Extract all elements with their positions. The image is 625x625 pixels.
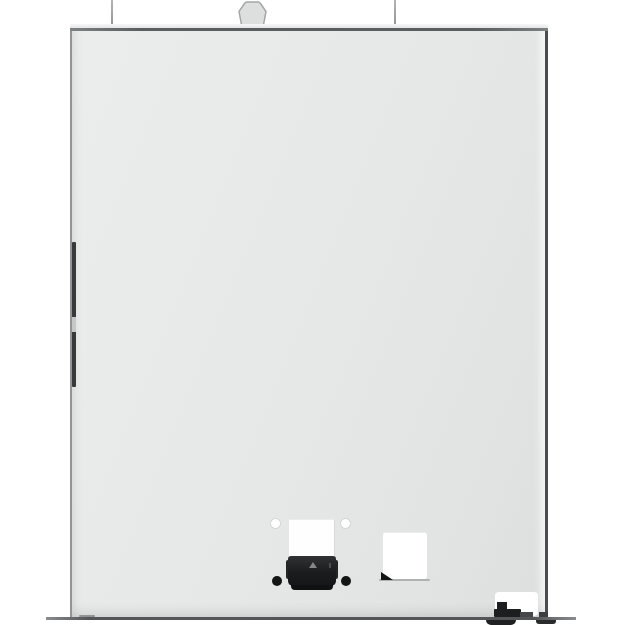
connector-body	[288, 556, 336, 586]
cord-cutout	[289, 519, 335, 560]
rear-panel	[70, 24, 548, 618]
screw-bottom-right	[341, 576, 351, 586]
connector-lip	[291, 585, 333, 590]
screw-bottom-left	[272, 576, 282, 586]
product-photo	[0, 0, 625, 625]
foot-left	[486, 620, 516, 625]
hinge-strip	[72, 242, 76, 387]
vent-cutout	[382, 532, 427, 579]
screw-hole-top-right	[340, 518, 351, 529]
hinge-gap	[72, 317, 76, 332]
power-connector	[286, 556, 338, 592]
foot-right	[536, 620, 556, 624]
connector-triangle-mark	[309, 562, 317, 568]
connector-latch-mark	[329, 563, 331, 568]
screw-hole-top-left	[270, 518, 281, 529]
corner-bracket-base	[494, 609, 521, 617]
